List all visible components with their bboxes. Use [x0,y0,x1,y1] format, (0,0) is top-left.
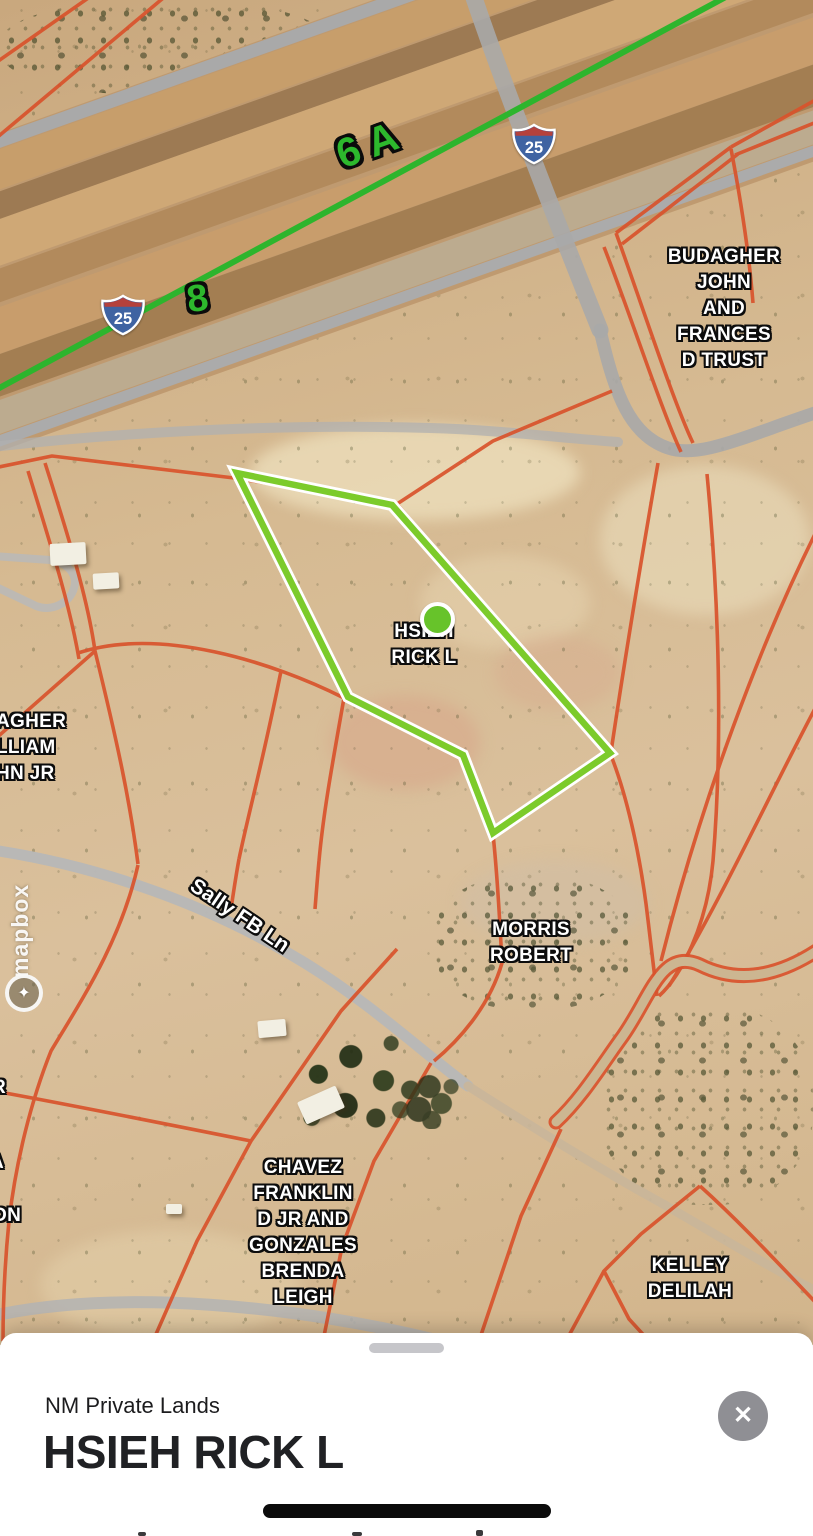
sheet-drag-handle[interactable] [369,1343,444,1353]
highway-corridor [0,0,813,450]
interstate-25-shield: 25 [100,294,146,336]
parcel-title: HSIEH RICK L [43,1425,344,1479]
mapbox-wordmark: mapbox [7,884,34,978]
parcel-owner-label-truncated: AGHER LLIAM HN JR [0,709,106,787]
mapbox-watermark[interactable]: mapbox [7,842,34,978]
building [93,572,120,589]
mapbox-logo-icon[interactable]: ✦ [5,974,43,1012]
close-icon: ✕ [733,1404,753,1428]
parcel-owner-label: BUDAGHER JOHN AND FRANCES D TRUST [624,244,813,374]
interstate-25-shield: 25 [511,123,557,165]
map-line-layer [0,0,813,1345]
bottom-peek [476,1530,483,1536]
home-indicator [263,1504,551,1518]
mapbox-pin-glyph: ✦ [17,983,30,1003]
selected-parcel-marker [420,602,455,637]
building [257,1019,286,1038]
parcel-owner-label: KELLEY DELILAH [600,1253,780,1305]
layer-source-label: NM Private Lands [45,1393,220,1419]
building [166,1204,182,1214]
parcel-owner-label-truncated: R [0,1075,32,1101]
close-button[interactable]: ✕ [718,1391,768,1441]
parcel-owner-label-truncated: A [0,1150,30,1176]
building [49,542,86,566]
parcel-owner-label: MORRIS ROBERT [441,917,621,969]
bottom-peek [138,1532,146,1536]
shield-number: 25 [114,310,132,328]
parcel-owner-label: CHAVEZ FRANKLIN D JR AND GONZALES BRENDA… [213,1155,393,1311]
map-canvas[interactable]: 25 25 6 A 8 BUDAGHER JOHN AND FRANCES D … [0,0,813,1345]
s-curve-road [556,950,813,1122]
app-screen: 25 25 6 A 8 BUDAGHER JOHN AND FRANCES D … [0,0,813,1536]
bottom-peek [352,1532,362,1536]
shield-number: 25 [525,139,543,157]
parcel-owner-label-truncated: ON [0,1203,42,1229]
